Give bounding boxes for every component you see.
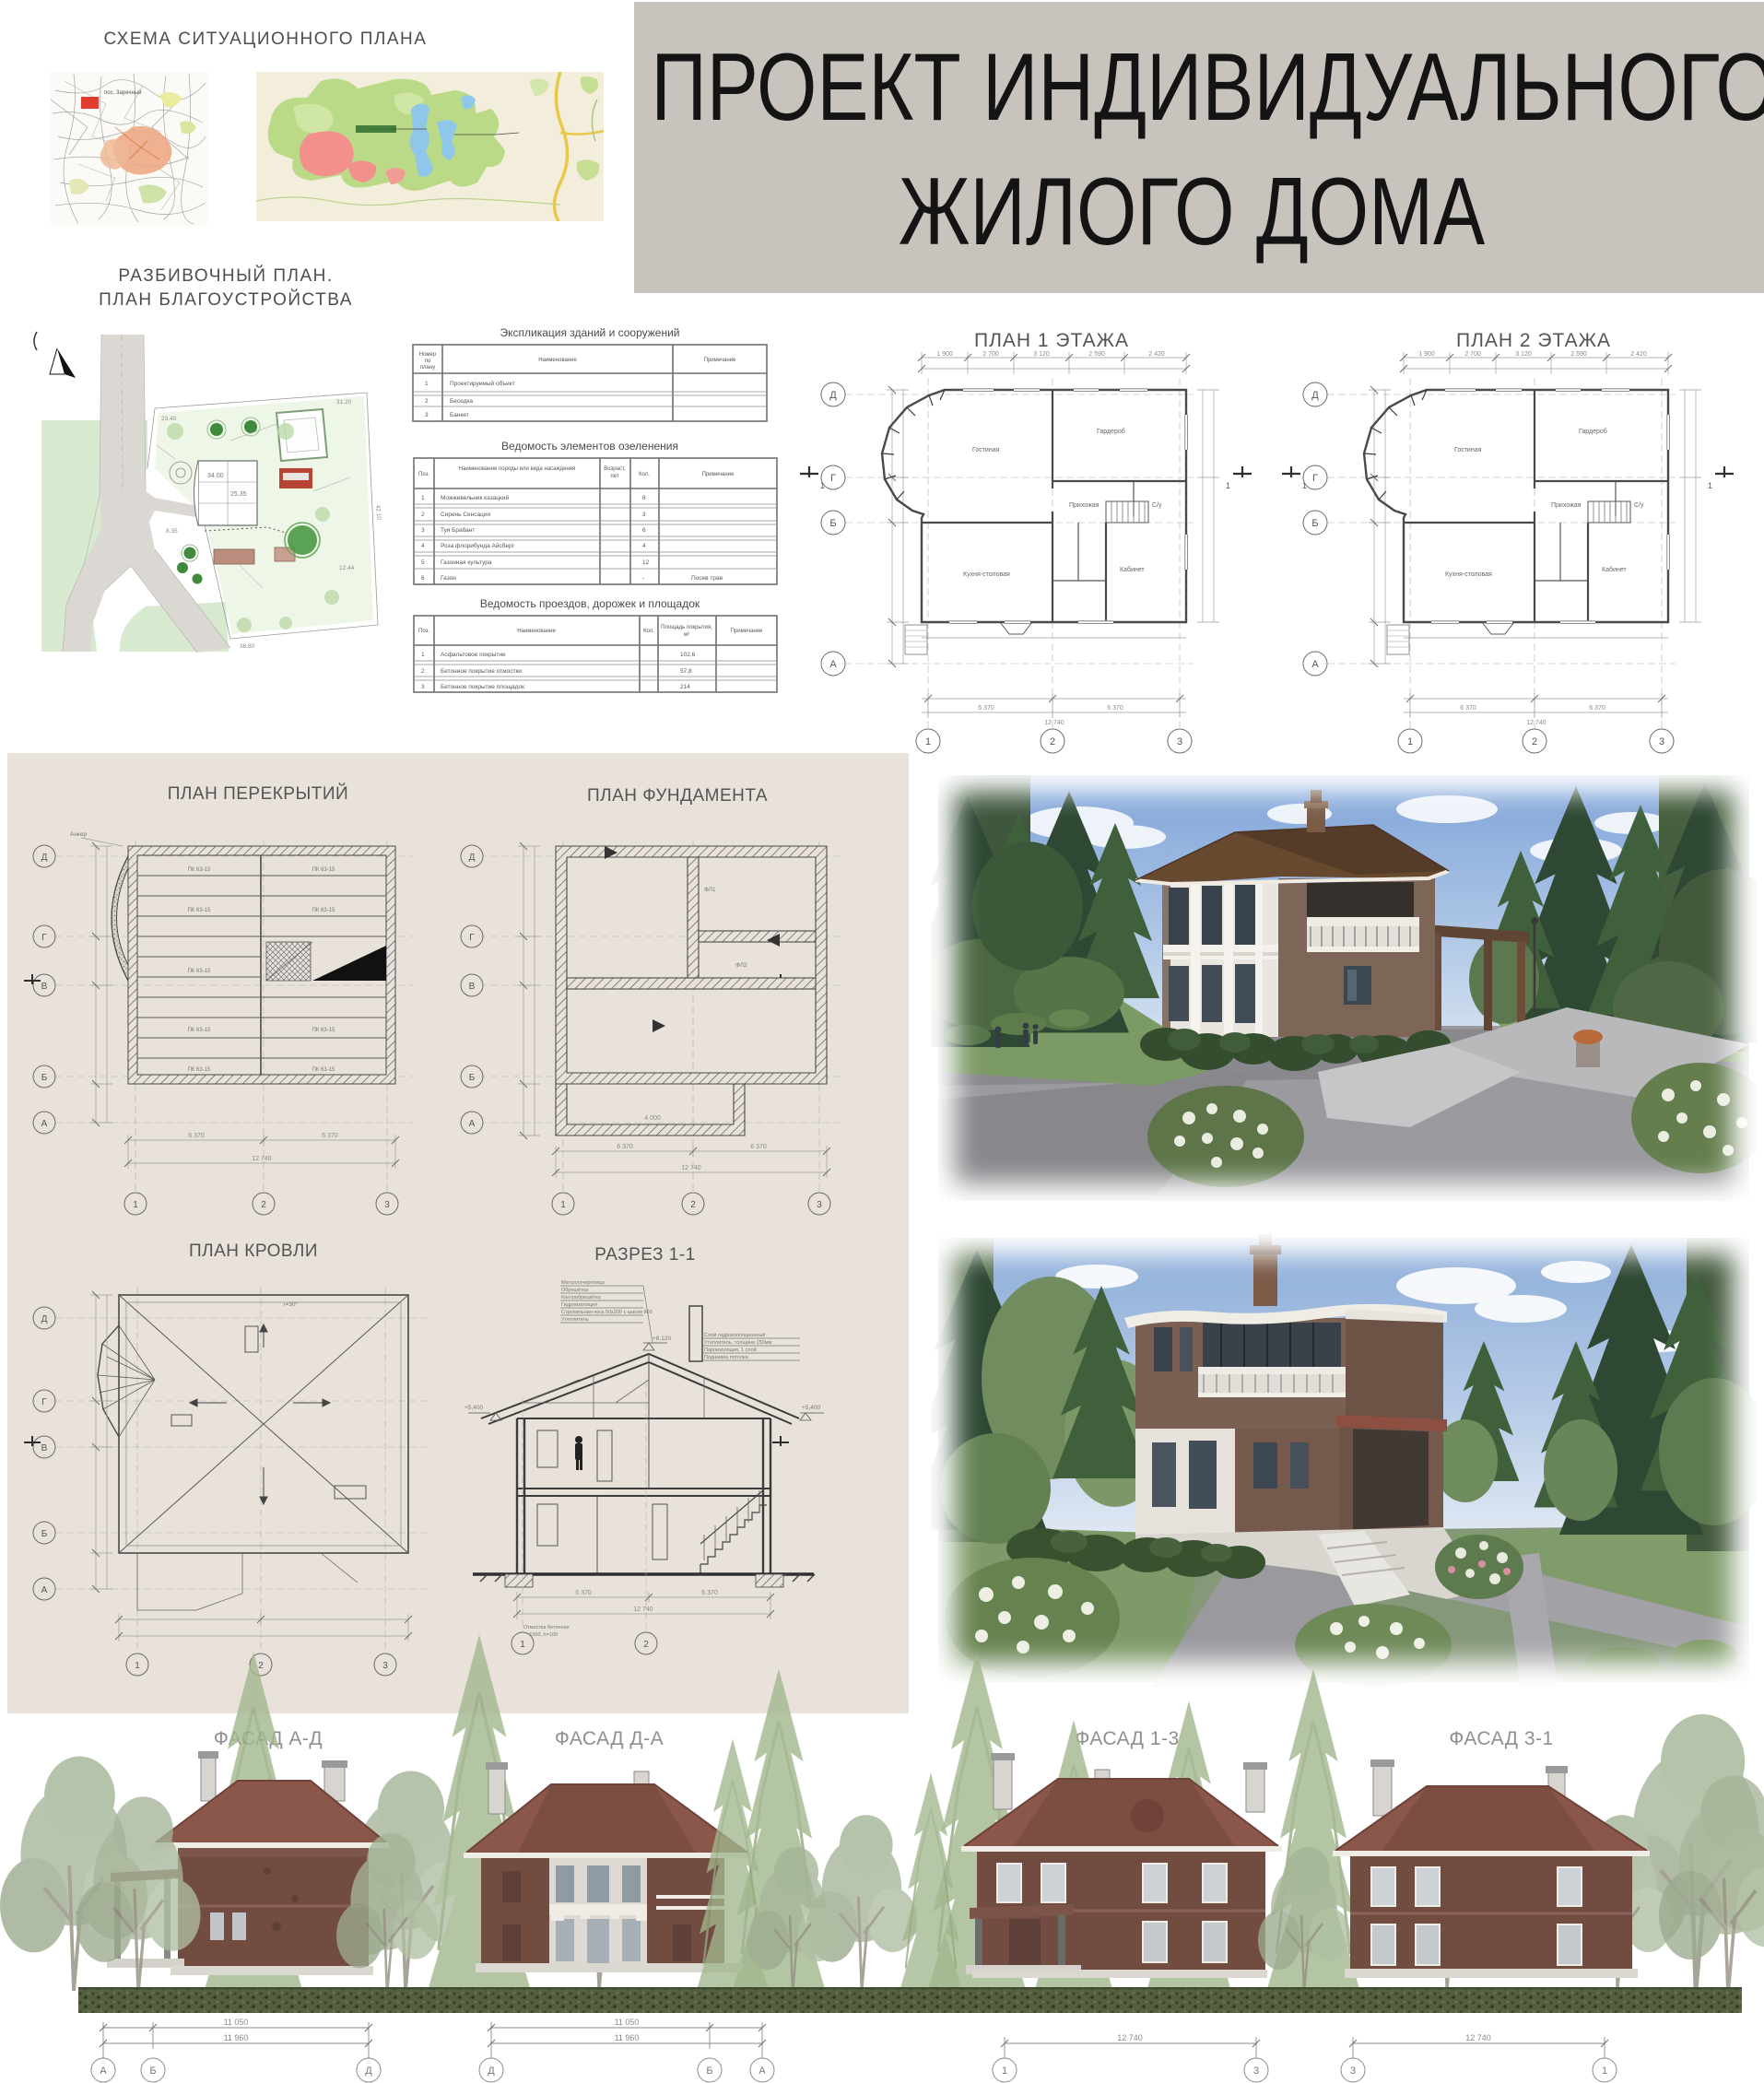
svg-text:В: В bbox=[469, 982, 476, 992]
svg-text:Б: Б bbox=[469, 1073, 476, 1083]
svg-text:31.20: 31.20 bbox=[336, 399, 352, 406]
svg-text:42.10: 42.10 bbox=[374, 505, 382, 521]
svg-text:ФЛ2: ФЛ2 bbox=[735, 962, 747, 969]
svg-text:3: 3 bbox=[817, 1200, 822, 1210]
svg-text:м²: м² bbox=[684, 632, 689, 638]
svg-text:36.80: 36.80 bbox=[240, 643, 255, 650]
svg-text:ПЛАН ФУНДАМЕНТА: ПЛАН ФУНДАМЕНТА bbox=[587, 786, 768, 806]
svg-text:Газон: Газон bbox=[441, 575, 456, 582]
svg-text:11 050: 11 050 bbox=[224, 2018, 249, 2027]
svg-text:12: 12 bbox=[642, 559, 650, 566]
svg-text:ПЛАН КРОВЛИ: ПЛАН КРОВЛИ bbox=[189, 1242, 318, 1261]
svg-text:12 740: 12 740 bbox=[1465, 2033, 1491, 2042]
svg-text:Утеплитель, толщина 150мм: Утеплитель, толщина 150мм bbox=[704, 1340, 772, 1346]
svg-text:ПК 63-15: ПК 63-15 bbox=[188, 1028, 211, 1033]
svg-text:А: А bbox=[41, 1585, 48, 1595]
svg-text:12 740: 12 740 bbox=[681, 1165, 701, 1171]
svg-text:-: - bbox=[642, 575, 644, 582]
svg-text:3: 3 bbox=[421, 527, 425, 534]
svg-text:Б: Б bbox=[149, 2065, 156, 2077]
svg-text:Номер: Номер bbox=[419, 352, 437, 358]
svg-text:ПК 63-15: ПК 63-15 bbox=[312, 867, 335, 873]
svg-text:Наименование: Наименование bbox=[538, 358, 577, 363]
svg-text:Ведомость элементов озеленения: Ведомость элементов озеленения bbox=[501, 440, 678, 453]
svg-text:В: В bbox=[41, 1443, 48, 1453]
svg-text:2: 2 bbox=[425, 398, 429, 405]
svg-text:пос. Заречный: пос. Заречный bbox=[104, 89, 141, 96]
svg-text:плану: плану bbox=[420, 365, 435, 371]
svg-text:1: 1 bbox=[425, 381, 429, 387]
svg-text:11 960: 11 960 bbox=[224, 2033, 249, 2042]
svg-text:12 740: 12 740 bbox=[252, 1156, 272, 1162]
svg-text:8: 8 bbox=[642, 495, 646, 501]
svg-text:3: 3 bbox=[642, 512, 646, 518]
svg-text:Пароизоляция, 1 слой: Пароизоляция, 1 слой bbox=[704, 1347, 757, 1353]
svg-text:Наименование породы или вида н: Наименование породы или вида насаждения bbox=[459, 466, 576, 472]
svg-text:34.00: 34.00 bbox=[207, 473, 224, 479]
svg-text:6: 6 bbox=[642, 527, 646, 534]
svg-text:2: 2 bbox=[261, 1200, 266, 1210]
svg-text:1: 1 bbox=[1602, 2065, 1607, 2077]
svg-text:Примечание: Примечание bbox=[702, 472, 735, 477]
svg-text:6 370: 6 370 bbox=[322, 1133, 338, 1139]
svg-text:А: А bbox=[759, 2065, 766, 2077]
svg-text:2: 2 bbox=[690, 1200, 696, 1210]
svg-text:Д: Д bbox=[469, 853, 476, 863]
svg-text:102,6: 102,6 bbox=[680, 652, 696, 658]
svg-text:11 960: 11 960 bbox=[615, 2033, 640, 2042]
svg-text:1: 1 bbox=[421, 495, 425, 501]
svg-text:i=30°: i=30° bbox=[284, 1300, 298, 1308]
svg-text:Бетонное покрытие отмостки: Бетонное покрытие отмостки bbox=[441, 668, 522, 675]
svg-text:Проектируемый объект: Проектируемый объект bbox=[450, 380, 515, 387]
svg-text:Бетонное покрытие площадок: Бетонное покрытие площадок bbox=[441, 684, 524, 690]
svg-text:Газонная культура: Газонная культура bbox=[441, 559, 492, 566]
svg-text:1: 1 bbox=[421, 652, 425, 658]
svg-text:6 370: 6 370 bbox=[701, 1590, 718, 1596]
svg-text:Д: Д bbox=[488, 2065, 495, 2077]
svg-text:ПК 63-15: ПК 63-15 bbox=[312, 908, 335, 913]
svg-text:Асфальтовое покрытие: Асфальтовое покрытие bbox=[441, 652, 506, 658]
svg-text:Г: Г bbox=[41, 1397, 47, 1407]
svg-text:Наименование: Наименование bbox=[517, 629, 556, 634]
svg-text:+5,400: +5,400 bbox=[465, 1405, 483, 1411]
svg-text:ФАСАД 3-1: ФАСАД 3-1 bbox=[1449, 1728, 1553, 1749]
svg-text:ПЛАН ПЕРЕКРЫТИЙ: ПЛАН ПЕРЕКРЫТИЙ bbox=[168, 783, 348, 804]
svg-text:Отмостка бетонная: Отмостка бетонная bbox=[523, 1625, 570, 1630]
svg-text:В: В bbox=[41, 982, 48, 992]
svg-text:2: 2 bbox=[421, 668, 425, 675]
svg-text:Утеплитель: Утеплитель bbox=[561, 1317, 589, 1323]
svg-text:3: 3 bbox=[425, 412, 429, 418]
svg-text:25.35: 25.35 bbox=[230, 491, 247, 498]
svg-text:3: 3 bbox=[1350, 2065, 1356, 2077]
svg-text:ПЛАН 1 ЭТАЖА: ПЛАН 1 ЭТАЖА bbox=[974, 330, 1129, 351]
svg-text:Кол.: Кол. bbox=[639, 472, 650, 477]
svg-text:12 740: 12 740 bbox=[633, 1606, 653, 1613]
svg-text:6 370: 6 370 bbox=[575, 1590, 592, 1596]
svg-text:Анкер: Анкер bbox=[70, 831, 87, 838]
svg-text:ПК 63-15: ПК 63-15 bbox=[312, 1028, 335, 1033]
svg-text:Примечание: Примечание bbox=[704, 358, 736, 363]
svg-text:А: А bbox=[100, 2065, 107, 2077]
svg-text:РАЗРЕЗ 1-1: РАЗРЕЗ 1-1 bbox=[594, 1245, 695, 1265]
svg-text:Б: Б bbox=[41, 1529, 48, 1539]
svg-text:4: 4 bbox=[642, 543, 646, 549]
svg-text:2: 2 bbox=[421, 512, 425, 518]
svg-text:4: 4 bbox=[421, 543, 425, 549]
svg-text:Площадь покрытия,: Площадь покрытия, bbox=[661, 625, 712, 630]
svg-text:по: по bbox=[425, 359, 431, 364]
svg-text:6 370: 6 370 bbox=[617, 1144, 633, 1150]
svg-text:Ведомость проездов, дорожек и: Ведомость проездов, дорожек и площадок bbox=[480, 597, 700, 610]
svg-text:ПК 63-15: ПК 63-15 bbox=[188, 969, 211, 974]
svg-text:3: 3 bbox=[384, 1200, 390, 1210]
svg-text:Поз.: Поз. bbox=[418, 472, 429, 477]
svg-text:Банкет: Банкет bbox=[450, 412, 469, 418]
svg-text:Подшивка потолка: Подшивка потолка bbox=[704, 1355, 749, 1360]
svg-text:Контробрешётка: Контробрешётка bbox=[561, 1295, 602, 1300]
svg-text:+5,400: +5,400 bbox=[802, 1405, 820, 1411]
svg-text:Д: Д bbox=[365, 2065, 372, 2077]
svg-text:6 370: 6 370 bbox=[188, 1133, 205, 1139]
svg-text:12 740: 12 740 bbox=[1117, 2033, 1143, 2042]
svg-text:Д: Д bbox=[41, 853, 48, 863]
svg-text:Возраст,: Возраст, bbox=[604, 466, 626, 472]
svg-text:1: 1 bbox=[560, 1200, 566, 1210]
svg-text:3: 3 bbox=[421, 684, 425, 690]
svg-text:Можжевельник казацкий: Можжевельник казацкий bbox=[441, 494, 509, 501]
svg-text:ПК 63-15: ПК 63-15 bbox=[312, 1067, 335, 1073]
svg-text:5: 5 bbox=[421, 559, 425, 566]
svg-text:Г: Г bbox=[469, 933, 475, 943]
svg-text:ФЛ1: ФЛ1 bbox=[704, 887, 716, 893]
svg-text:Примечание: Примечание bbox=[731, 629, 763, 634]
svg-text:Б: Б bbox=[41, 1073, 48, 1083]
svg-text:1: 1 bbox=[1002, 2065, 1007, 2077]
svg-text:57,8: 57,8 bbox=[680, 668, 692, 675]
svg-text:1: 1 bbox=[133, 1200, 138, 1210]
svg-text:23.40: 23.40 bbox=[161, 416, 177, 422]
svg-text:Роза флорибунда Айсберг: Роза флорибунда Айсберг bbox=[441, 542, 515, 549]
svg-text:Г: Г bbox=[41, 933, 47, 943]
svg-text:Посев трав: Посев трав bbox=[691, 575, 723, 582]
svg-text:6: 6 bbox=[421, 575, 425, 582]
svg-text:ФАСАД 1-3: ФАСАД 1-3 bbox=[1075, 1728, 1179, 1749]
svg-text:ФАСАД Д-А: ФАСАД Д-А bbox=[555, 1728, 664, 1749]
svg-text:Слой гидроизоляционный: Слой гидроизоляционный bbox=[704, 1332, 765, 1338]
svg-text:А: А bbox=[469, 1119, 476, 1129]
svg-text:+8,120: +8,120 bbox=[653, 1336, 671, 1342]
svg-text:Металлочерепица: Металлочерепица bbox=[561, 1280, 606, 1286]
svg-text:ПК 63-15: ПК 63-15 bbox=[188, 1067, 211, 1073]
svg-text:Поз.: Поз. bbox=[418, 629, 429, 634]
svg-text:Б: Б bbox=[706, 2065, 712, 2077]
svg-text:А: А bbox=[41, 1119, 48, 1129]
svg-text:214: 214 bbox=[680, 684, 690, 690]
svg-text:ПК 63-15: ПК 63-15 bbox=[188, 867, 211, 873]
svg-text:Экспликация зданий и сооружени: Экспликация зданий и сооружений bbox=[500, 326, 679, 339]
svg-text:3: 3 bbox=[1253, 2065, 1259, 2077]
svg-text:4 000: 4 000 bbox=[644, 1115, 661, 1122]
svg-text:8.35: 8.35 bbox=[166, 528, 178, 535]
svg-text:ПК 63-15: ПК 63-15 bbox=[188, 908, 211, 913]
svg-text:6 370: 6 370 bbox=[750, 1144, 767, 1150]
svg-text:11 050: 11 050 bbox=[615, 2018, 640, 2027]
svg-text:Обрешётка: Обрешётка bbox=[561, 1288, 589, 1293]
svg-text:Сирень Сенсация: Сирень Сенсация bbox=[441, 512, 490, 518]
svg-text:Д: Д bbox=[41, 1314, 48, 1324]
svg-text:12.44: 12.44 bbox=[339, 565, 355, 571]
svg-text:Беседка: Беседка bbox=[450, 398, 473, 405]
svg-text:Стропильная нога 50х200 с шаго: Стропильная нога 50х200 с шагом 800 bbox=[561, 1310, 653, 1315]
svg-text:ПЛАН 2 ЭТАЖА: ПЛАН 2 ЭТАЖА bbox=[1456, 330, 1611, 351]
svg-text:Туя Брабант: Туя Брабант bbox=[441, 526, 475, 534]
svg-text:Кол.: Кол. bbox=[643, 629, 654, 634]
svg-text:Гидроизоляция: Гидроизоляция bbox=[561, 1302, 597, 1308]
svg-text:лет: лет bbox=[610, 474, 619, 479]
